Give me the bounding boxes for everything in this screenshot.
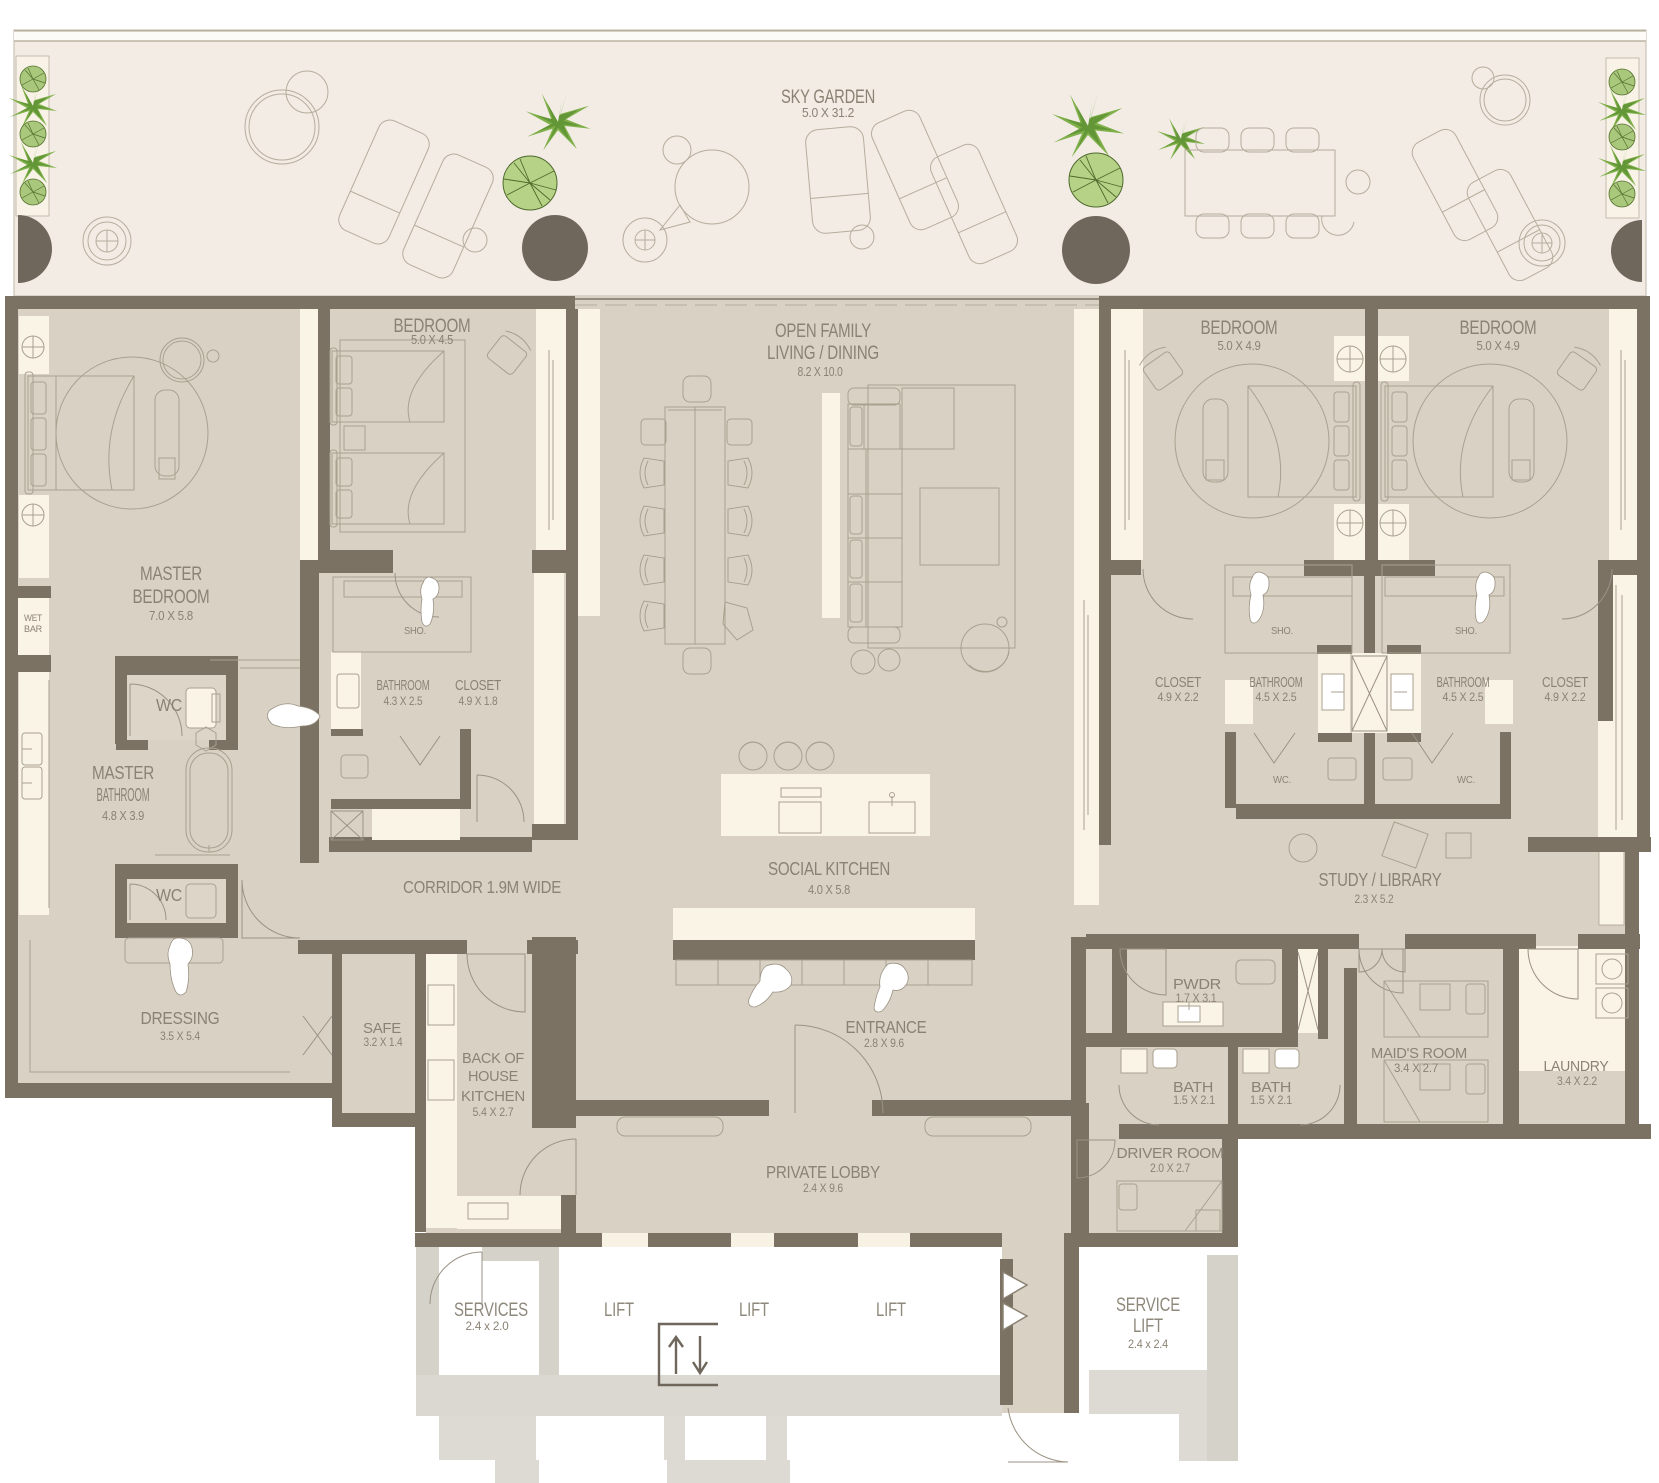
svg-text:2.4 x 2.4: 2.4 x 2.4 [1128, 1337, 1168, 1351]
svg-text:CORRIDOR 1.9M WIDE: CORRIDOR 1.9M WIDE [403, 877, 561, 897]
svg-text:3.2 X 1.4: 3.2 X 1.4 [364, 1035, 403, 1049]
svg-text:2.3 X 5.2: 2.3 X 5.2 [1355, 892, 1394, 906]
svg-text:1.7 X 3.1: 1.7 X 3.1 [1176, 991, 1217, 1005]
svg-text:SOCIAL KITCHEN: SOCIAL KITCHEN [768, 859, 890, 879]
svg-text:7.0 X 5.8: 7.0 X 5.8 [149, 609, 193, 623]
svg-text:8.2 X 10.0: 8.2 X 10.0 [798, 365, 843, 379]
svg-text:STUDY / LIBRARY: STUDY / LIBRARY [1319, 870, 1442, 890]
svg-text:WC: WC [156, 885, 182, 905]
svg-text:PRIVATE LOBBY: PRIVATE LOBBY [766, 1162, 881, 1182]
svg-text:KITCHEN: KITCHEN [461, 1088, 525, 1105]
svg-text:4.8 X 3.9: 4.8 X 3.9 [102, 809, 144, 823]
svg-text:3.4 X 2.2: 3.4 X 2.2 [1557, 1074, 1597, 1088]
svg-text:1.5 X 2.1: 1.5 X 2.1 [1250, 1093, 1292, 1107]
svg-text:SHO.: SHO. [1455, 626, 1477, 637]
svg-text:4.9 X 2.2: 4.9 X 2.2 [1158, 690, 1199, 704]
svg-text:WC.: WC. [1457, 775, 1475, 786]
svg-text:5.0 X 4.9: 5.0 X 4.9 [1218, 339, 1261, 353]
svg-text:2.8 X 9.6: 2.8 X 9.6 [864, 1036, 904, 1050]
svg-text:SHO.: SHO. [404, 626, 426, 637]
svg-text:4.0 X 5.8: 4.0 X 5.8 [808, 883, 850, 897]
svg-text:BEDROOM: BEDROOM [1460, 317, 1537, 339]
svg-text:SERVICES: SERVICES [454, 1300, 528, 1321]
svg-text:SHO.: SHO. [1271, 626, 1293, 637]
svg-text:4.9 X 1.8: 4.9 X 1.8 [459, 694, 498, 708]
svg-text:3.5 X 5.4: 3.5 X 5.4 [160, 1029, 200, 1043]
svg-text:CLOSET: CLOSET [455, 677, 501, 694]
svg-text:2.4 x 2.0: 2.4 x 2.0 [466, 1319, 510, 1333]
svg-text:LIVING / DINING: LIVING / DINING [767, 342, 879, 364]
svg-text:BAR: BAR [24, 624, 43, 634]
svg-text:CLOSET: CLOSET [1542, 674, 1588, 691]
svg-text:4.9 X 2.2: 4.9 X 2.2 [1545, 690, 1586, 704]
svg-text:2.0 X 2.7: 2.0 X 2.7 [1150, 1161, 1190, 1175]
svg-text:1.5 X 2.1: 1.5 X 2.1 [1173, 1093, 1215, 1107]
svg-text:BEDROOM: BEDROOM [133, 586, 210, 608]
svg-text:BACK OF: BACK OF [462, 1050, 524, 1067]
svg-text:BATHROOM: BATHROOM [1250, 674, 1303, 691]
svg-text:DRESSING: DRESSING [141, 1008, 220, 1028]
svg-text:SERVICE: SERVICE [1116, 1295, 1180, 1316]
svg-text:4.3 X 2.5: 4.3 X 2.5 [384, 694, 423, 708]
svg-text:LIFT: LIFT [739, 1300, 769, 1321]
svg-text:MASTER: MASTER [140, 563, 202, 585]
svg-text:5.0 X 31.2: 5.0 X 31.2 [802, 106, 854, 120]
svg-text:LIFT: LIFT [604, 1300, 634, 1321]
svg-text:3.4 X 2.7: 3.4 X 2.7 [1394, 1061, 1438, 1075]
svg-text:5.0 X 4.5: 5.0 X 4.5 [411, 333, 453, 347]
svg-text:5.0 X 4.9: 5.0 X 4.9 [1477, 339, 1520, 353]
svg-text:BATHROOM: BATHROOM [97, 785, 150, 805]
svg-text:MAID'S ROOM: MAID'S ROOM [1371, 1045, 1467, 1062]
svg-text:SKY GARDEN: SKY GARDEN [781, 87, 875, 108]
svg-text:2.4 X 9.6: 2.4 X 9.6 [803, 1181, 843, 1195]
svg-text:WC.: WC. [1273, 775, 1291, 786]
svg-text:MASTER: MASTER [92, 763, 154, 783]
svg-text:5.4 X 2.7: 5.4 X 2.7 [473, 1105, 514, 1119]
svg-text:WC: WC [156, 695, 182, 715]
svg-text:OPEN FAMILY: OPEN FAMILY [775, 320, 871, 342]
svg-text:WET: WET [24, 613, 43, 623]
svg-text:BATHROOM: BATHROOM [1437, 674, 1490, 691]
svg-text:BEDROOM: BEDROOM [1201, 317, 1278, 339]
svg-text:BATHROOM: BATHROOM [377, 677, 430, 694]
svg-text:ENTRANCE: ENTRANCE [846, 1017, 927, 1037]
svg-text:CLOSET: CLOSET [1155, 674, 1201, 691]
svg-text:4.5 X 2.5: 4.5 X 2.5 [1256, 690, 1297, 704]
svg-text:LAUNDRY: LAUNDRY [1544, 1058, 1609, 1075]
svg-text:HOUSE: HOUSE [468, 1068, 518, 1085]
svg-text:4.5 X 2.5: 4.5 X 2.5 [1443, 690, 1484, 704]
svg-text:LIFT: LIFT [1133, 1316, 1163, 1337]
svg-text:LIFT: LIFT [876, 1300, 906, 1321]
svg-text:DRIVER ROOM: DRIVER ROOM [1117, 1145, 1224, 1162]
